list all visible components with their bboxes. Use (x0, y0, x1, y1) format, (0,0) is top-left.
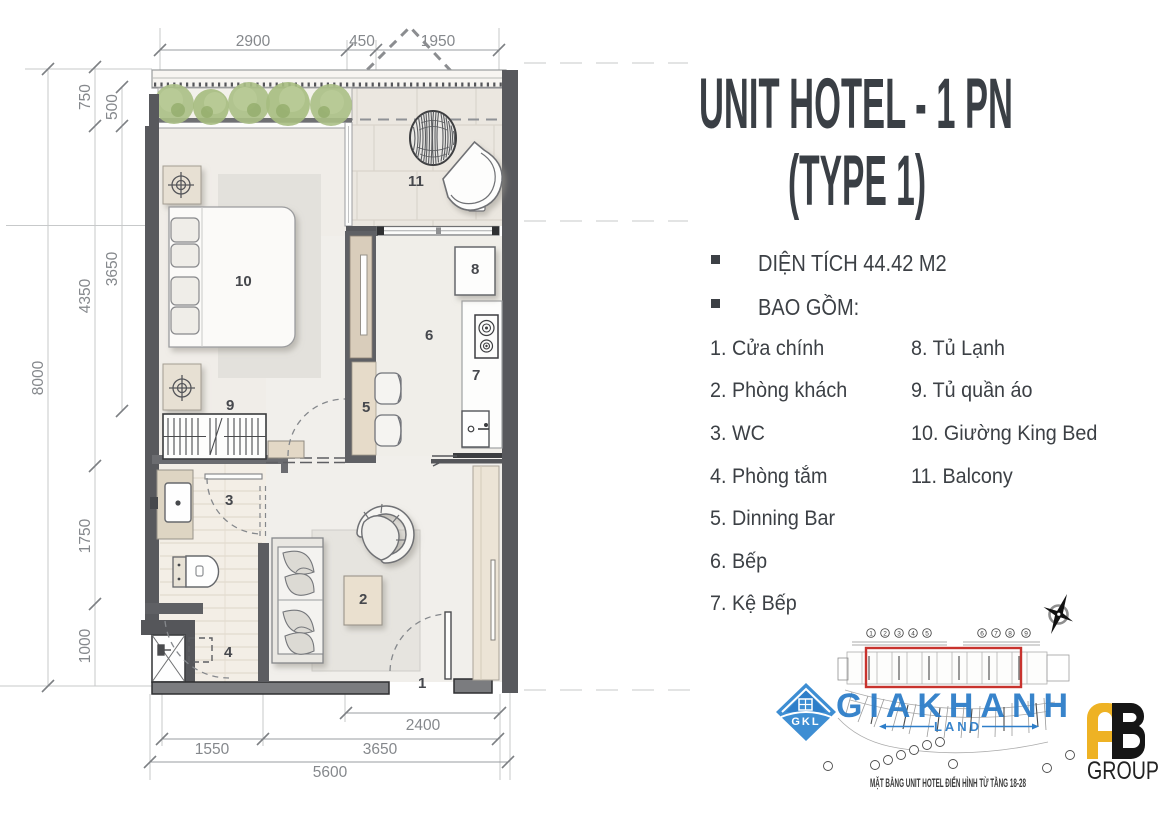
svg-text:2400: 2400 (406, 717, 441, 734)
svg-text:1750: 1750 (77, 518, 94, 553)
svg-text:9: 9 (1024, 631, 1028, 638)
svg-text:MẶT BẰNG UNIT HOTEL ĐIỂN HÌNH: MẶT BẰNG UNIT HOTEL ĐIỂN HÌNH TỪ TẦNG 18… (870, 777, 1026, 790)
svg-text:11: 11 (408, 173, 424, 190)
svg-text:GKL: GKL (791, 716, 820, 728)
svg-text:750: 750 (77, 84, 94, 110)
svg-text:3650: 3650 (104, 251, 121, 286)
svg-text:6: 6 (980, 631, 984, 638)
svg-text:(TYPE 1): (TYPE 1) (788, 142, 926, 221)
svg-text:8: 8 (1008, 631, 1012, 638)
svg-text:5: 5 (362, 399, 370, 416)
svg-text:1: 1 (418, 675, 426, 692)
svg-text:6: 6 (425, 327, 433, 344)
svg-text:1: 1 (869, 631, 873, 638)
svg-text:10: 10 (235, 273, 252, 290)
svg-text:8: 8 (471, 261, 479, 278)
svg-text:1000: 1000 (77, 628, 94, 663)
svg-text:1950: 1950 (421, 33, 456, 50)
svg-text:1550: 1550 (195, 741, 230, 758)
svg-text:3: 3 (225, 492, 233, 509)
svg-text:LAND: LAND (934, 719, 982, 734)
svg-text:450: 450 (349, 33, 375, 50)
svg-text:4: 4 (224, 644, 233, 661)
svg-text:9: 9 (226, 397, 234, 414)
svg-text:2: 2 (359, 591, 367, 608)
svg-text:3: 3 (897, 631, 901, 638)
svg-text:2: 2 (883, 631, 887, 638)
svg-text:7: 7 (472, 367, 480, 384)
svg-text:UNIT HOTEL - 1 PN: UNIT HOTEL - 1 PN (699, 65, 1013, 144)
svg-text:4: 4 (911, 631, 915, 638)
svg-text:7: 7 (994, 631, 998, 638)
svg-text:2900: 2900 (236, 33, 271, 50)
svg-text:4350: 4350 (77, 278, 94, 313)
svg-text:5: 5 (925, 631, 929, 638)
svg-text:5600: 5600 (313, 764, 348, 781)
svg-text:8000: 8000 (30, 360, 47, 395)
svg-text:3650: 3650 (363, 741, 398, 758)
svg-text:500: 500 (104, 94, 121, 120)
